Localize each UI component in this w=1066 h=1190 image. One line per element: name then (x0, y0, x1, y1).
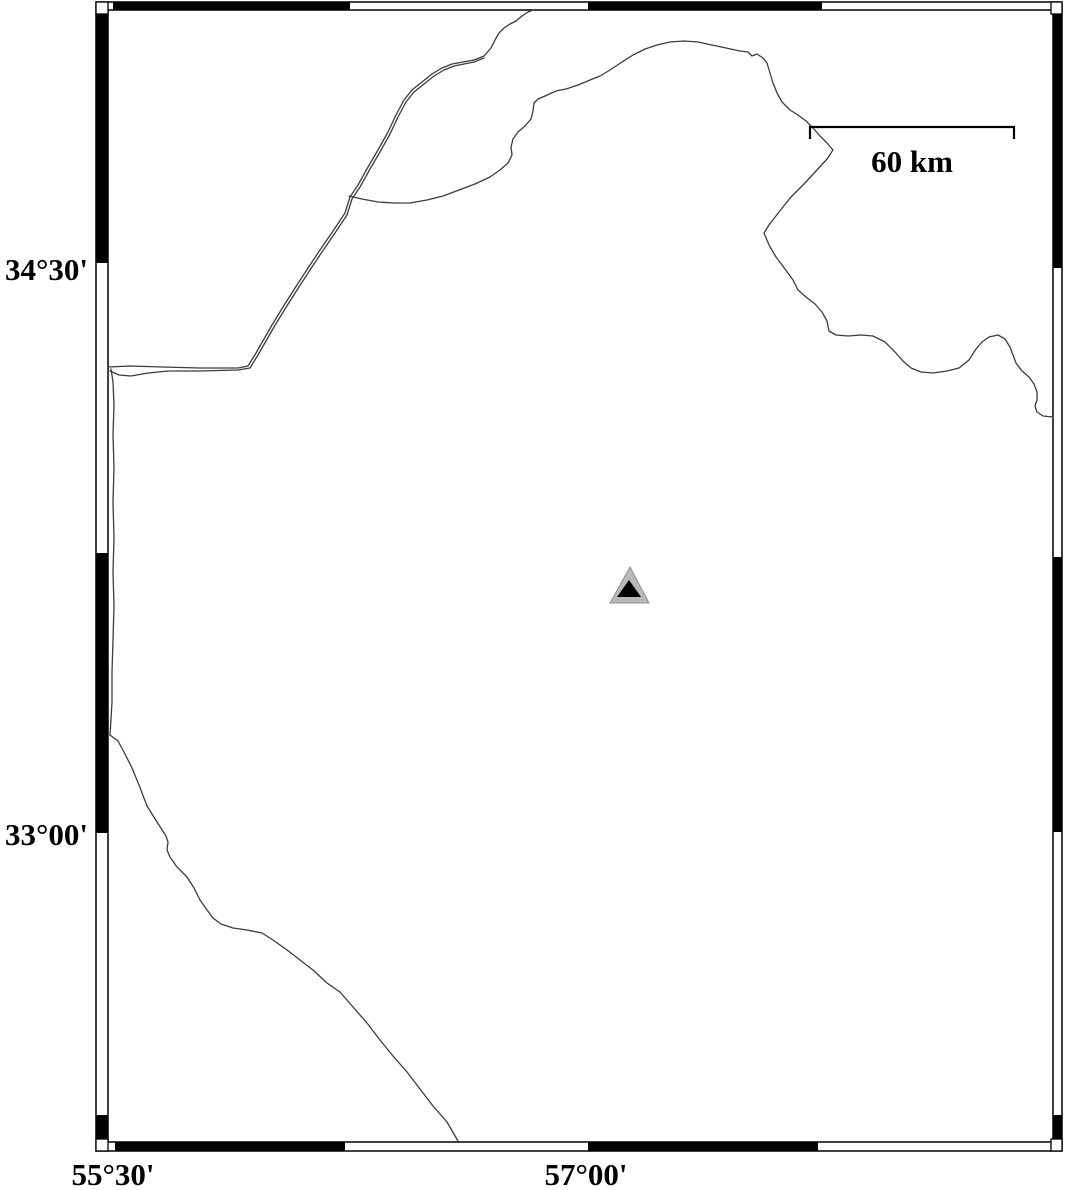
scale-bar-label: 60 km (871, 144, 953, 179)
lat-label-top: 34°30' (5, 252, 88, 287)
border-line-second-strand (110, 58, 484, 376)
lon-label-left: 55°30' (71, 1157, 154, 1190)
seismic-station-marker (610, 567, 649, 603)
map-figure: 34°30' 33°00' 55°30' 57°00' 60 km (0, 0, 1066, 1190)
coastline-southwest (110, 735, 458, 1141)
lat-label-bottom: 33°00' (5, 817, 88, 852)
scale-bar (810, 127, 1014, 139)
coastlines (108, 10, 1053, 1141)
map-svg: 34°30' 33°00' 55°30' 57°00' 60 km (0, 0, 1066, 1190)
lon-label-right: 57°00' (544, 1157, 627, 1190)
border-line-west-edge (110, 369, 114, 735)
coastline-north (349, 41, 1053, 417)
border-line-main (108, 10, 533, 368)
